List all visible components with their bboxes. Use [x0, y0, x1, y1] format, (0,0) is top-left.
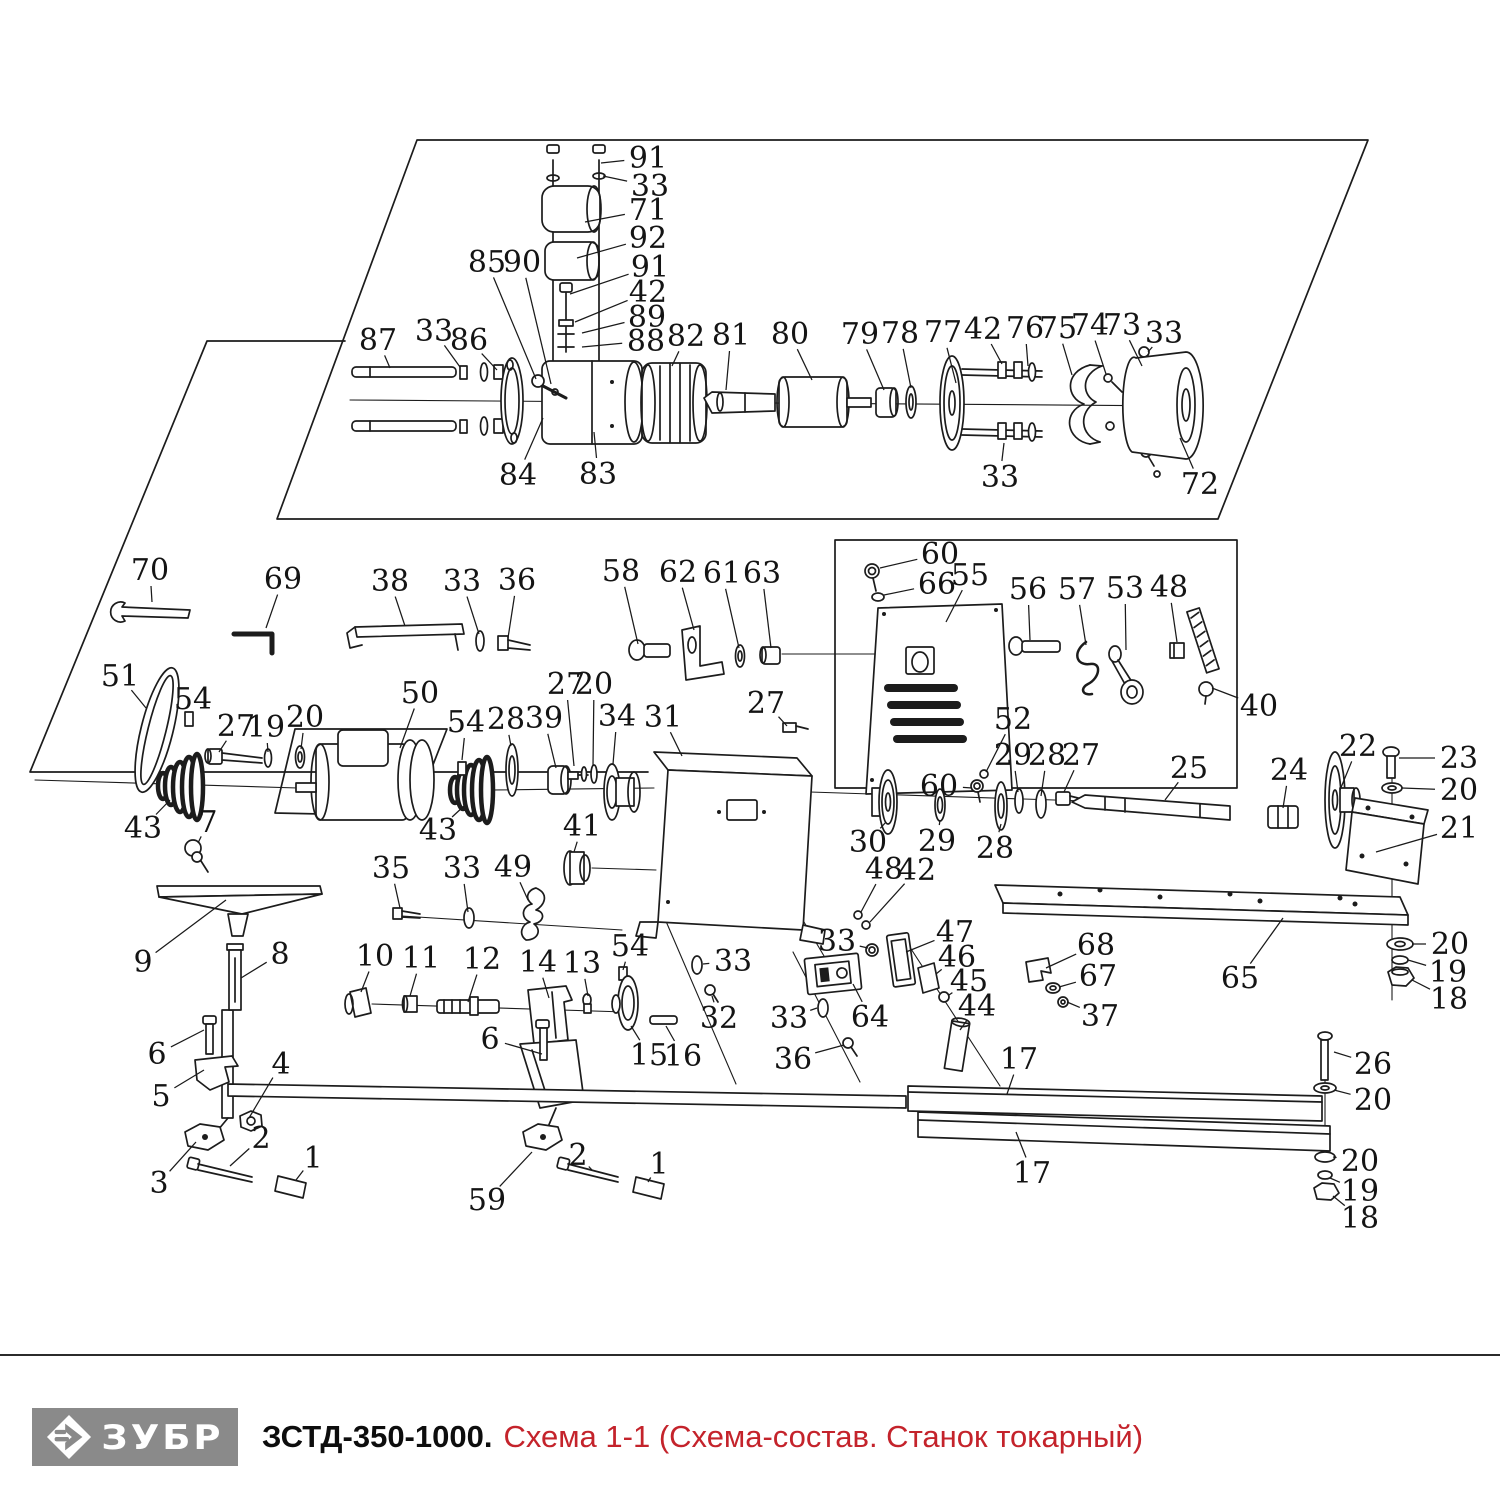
leader-line: [991, 344, 1002, 364]
leader-line: [156, 900, 226, 953]
part-label-6: 6: [147, 1037, 166, 1072]
leader-line: [682, 588, 694, 630]
leader-line: [1334, 1052, 1351, 1057]
leader-line: [1002, 443, 1004, 461]
part-label-84: 84: [499, 458, 537, 493]
leader-line: [464, 884, 468, 912]
doc-subtitle: Схема 1-1 (Схема-состав. Станок токарный…: [503, 1419, 1143, 1455]
part-label-1: 1: [649, 1147, 668, 1182]
exploded-parts-diagram: 9133719291428988859087338684838281807978…: [0, 0, 1500, 1355]
leader-line: [703, 963, 709, 964]
leader-line: [613, 732, 616, 764]
leader-line: [1333, 1157, 1337, 1158]
part-label-23: 23: [1440, 741, 1478, 776]
leader-line: [230, 1149, 249, 1167]
part-label-64: 64: [851, 1000, 889, 1035]
part-label-80: 80: [771, 317, 809, 352]
part-label-9: 9: [133, 945, 152, 980]
part-label-6: 6: [480, 1022, 499, 1057]
part-label-1: 1: [303, 1141, 322, 1176]
part-label-40: 40: [1240, 689, 1278, 724]
part-label-58: 58: [602, 554, 640, 589]
part-label-49: 49: [494, 850, 532, 885]
leader-line: [1412, 980, 1430, 989]
part-label-61: 61: [703, 556, 741, 591]
leader-line: [582, 323, 625, 334]
leader-line: [1080, 605, 1086, 645]
leader-line: [296, 1171, 303, 1181]
part-label-85: 85: [468, 245, 506, 280]
leader-line: [266, 595, 278, 628]
doc-model: ЗСТД-350-1000.: [262, 1419, 492, 1455]
leader-line: [568, 700, 574, 766]
brand-logo-text: ЗУБР: [101, 1417, 223, 1457]
part-label-26: 26: [1354, 1047, 1392, 1082]
part-label-63: 63: [743, 556, 781, 591]
part-label-59: 59: [468, 1183, 506, 1218]
leader-line: [861, 884, 876, 912]
part-label-33: 33: [981, 460, 1019, 495]
part-label-33: 33: [443, 564, 481, 599]
part-label-70: 70: [131, 553, 169, 588]
part-label-8: 8: [270, 937, 289, 972]
part-label-37: 37: [1081, 999, 1119, 1034]
part-label-33: 33: [1145, 316, 1183, 351]
part-label-34: 34: [598, 699, 636, 734]
part-label-60: 60: [920, 769, 958, 804]
part-label-51: 51: [101, 659, 139, 694]
part-label-12: 12: [463, 942, 501, 977]
leader-line: [1212, 688, 1238, 698]
page: 9133719291428988859087338684838281807978…: [0, 0, 1500, 1500]
leader-line: [593, 700, 594, 766]
leader-line: [151, 586, 152, 602]
leader-line: [1046, 954, 1076, 968]
part-label-33: 33: [818, 924, 856, 959]
part-label-44: 44: [958, 989, 996, 1024]
part-label-27: 27: [747, 686, 785, 721]
footer: ЗУБР ЗСТД-350-1000. Схема 1-1 (Схема-сос…: [0, 1400, 1500, 1480]
leader-line: [880, 559, 917, 568]
leader-line: [601, 161, 624, 164]
part-label-32: 32: [700, 1001, 738, 1036]
leader-line: [1067, 1002, 1080, 1007]
part-label-54: 54: [174, 682, 212, 717]
part-label-36: 36: [498, 563, 536, 598]
part-label-53: 53: [1106, 571, 1144, 606]
part-label-33: 33: [415, 314, 453, 349]
part-label-54: 54: [611, 929, 649, 964]
part-label-17: 17: [1013, 1156, 1051, 1191]
leader-line: [508, 596, 515, 638]
part-label-79: 79: [841, 317, 879, 352]
part-label-7: 7: [198, 805, 217, 840]
leader-line: [603, 176, 627, 181]
part-label-14: 14: [519, 945, 557, 980]
leader-line: [582, 343, 622, 347]
part-label-22: 22: [1339, 729, 1377, 764]
part-label-20: 20: [286, 700, 324, 735]
leader-line: [810, 1008, 817, 1010]
part-label-28: 28: [1028, 738, 1066, 773]
leader-line: [1125, 604, 1126, 650]
part-label-73: 73: [1103, 308, 1141, 343]
part-label-87: 87: [359, 323, 397, 358]
diagram-artwork: [30, 140, 1428, 1200]
leader-line: [500, 1152, 532, 1186]
leader-line: [764, 589, 771, 648]
footer-divider: [0, 1354, 1500, 1356]
leader-line: [1334, 1090, 1351, 1094]
part-label-78: 78: [881, 316, 919, 351]
part-label-56: 56: [1009, 572, 1047, 607]
leader-line: [726, 589, 739, 648]
leader-line: [870, 884, 905, 922]
leader-line: [467, 597, 479, 634]
leader-line: [410, 974, 417, 996]
part-label-41: 41: [563, 809, 601, 844]
leader-line: [1171, 603, 1177, 642]
part-label-55: 55: [951, 558, 989, 593]
part-label-43: 43: [419, 813, 457, 848]
leader-line: [462, 738, 464, 760]
leader-line: [963, 787, 972, 788]
part-label-20: 20: [1440, 773, 1478, 808]
leader-line: [1059, 982, 1076, 987]
leader-line: [625, 587, 638, 644]
leader-line: [1026, 344, 1028, 366]
part-label-19: 19: [247, 710, 285, 745]
part-label-13: 13: [563, 946, 601, 981]
part-label-72: 72: [1181, 467, 1219, 502]
leader-line: [526, 278, 551, 384]
document-title: ЗСТД-350-1000. Схема 1-1 (Схема-состав. …: [262, 1408, 1143, 1466]
part-label-28: 28: [487, 702, 525, 737]
part-label-18: 18: [1430, 982, 1468, 1017]
part-label-10: 10: [356, 939, 394, 974]
part-label-3: 3: [149, 1166, 168, 1201]
leader-line: [726, 351, 730, 390]
leader-line: [1402, 788, 1435, 789]
leader-line: [241, 962, 267, 978]
part-label-81: 81: [712, 318, 750, 353]
part-label-20: 20: [575, 667, 613, 702]
part-label-43: 43: [124, 811, 162, 846]
leader-line: [1330, 1178, 1340, 1182]
part-label-42: 42: [898, 853, 936, 888]
part-label-38: 38: [371, 564, 409, 599]
leader-line: [1250, 918, 1283, 964]
part-label-86: 86: [450, 323, 488, 358]
leader-line: [171, 1030, 204, 1047]
part-label-11: 11: [402, 941, 440, 976]
part-label-31: 31: [644, 700, 682, 735]
part-label-18: 18: [1341, 1201, 1379, 1236]
brand-logo: ЗУБР: [32, 1408, 238, 1466]
leader-line: [903, 349, 911, 388]
part-label-69: 69: [264, 562, 302, 597]
part-label-29: 29: [994, 738, 1032, 773]
part-label-39: 39: [525, 701, 563, 736]
part-label-21: 21: [1440, 811, 1478, 846]
part-label-25: 25: [1170, 751, 1208, 786]
part-label-27: 27: [1062, 738, 1100, 773]
part-label-4: 4: [271, 1047, 290, 1082]
part-label-33: 33: [443, 851, 481, 886]
part-label-42: 42: [964, 312, 1002, 347]
part-label-65: 65: [1221, 961, 1259, 996]
leader-line: [815, 1045, 844, 1053]
part-label-48: 48: [1150, 570, 1188, 605]
part-label-50: 50: [401, 676, 439, 711]
part-label-16: 16: [664, 1039, 702, 1074]
part-label-82: 82: [667, 319, 705, 354]
part-label-20: 20: [1354, 1083, 1392, 1118]
part-label-57: 57: [1058, 572, 1096, 607]
part-label-15: 15: [630, 1038, 668, 1073]
part-label-2: 2: [251, 1121, 270, 1156]
part-label-33: 33: [714, 944, 752, 979]
part-label-83: 83: [579, 457, 617, 492]
part-label-33: 33: [770, 1001, 808, 1036]
part-label-90: 90: [503, 245, 541, 280]
part-label-54: 54: [447, 705, 485, 740]
leader-line: [548, 734, 556, 768]
leader-line: [867, 349, 884, 390]
part-label-35: 35: [372, 851, 410, 886]
leader-line: [1408, 960, 1426, 965]
leader-line: [395, 884, 400, 908]
part-label-67: 67: [1079, 959, 1117, 994]
part-label-24: 24: [1270, 753, 1308, 788]
part-labels-layer: 9133719291428988859087338684838281807978…: [101, 141, 1478, 1236]
leader-line: [884, 589, 914, 595]
leader-line: [1283, 786, 1287, 808]
part-label-52: 52: [994, 702, 1032, 737]
part-label-88: 88: [627, 324, 665, 359]
leader-line: [525, 418, 543, 460]
leader-line: [1063, 344, 1072, 375]
part-label-68: 68: [1077, 928, 1115, 963]
part-label-2: 2: [568, 1138, 587, 1173]
part-label-77: 77: [924, 315, 962, 350]
leader-line: [575, 300, 628, 322]
part-label-28: 28: [976, 831, 1014, 866]
brand-diamond-icon: [46, 1414, 92, 1460]
leader-line: [395, 597, 405, 626]
part-label-17: 17: [1000, 1042, 1038, 1077]
part-label-62: 62: [659, 555, 697, 590]
part-label-5: 5: [151, 1079, 170, 1114]
leader-line: [797, 349, 812, 380]
leader-line: [1029, 605, 1030, 640]
part-label-36: 36: [774, 1042, 812, 1077]
